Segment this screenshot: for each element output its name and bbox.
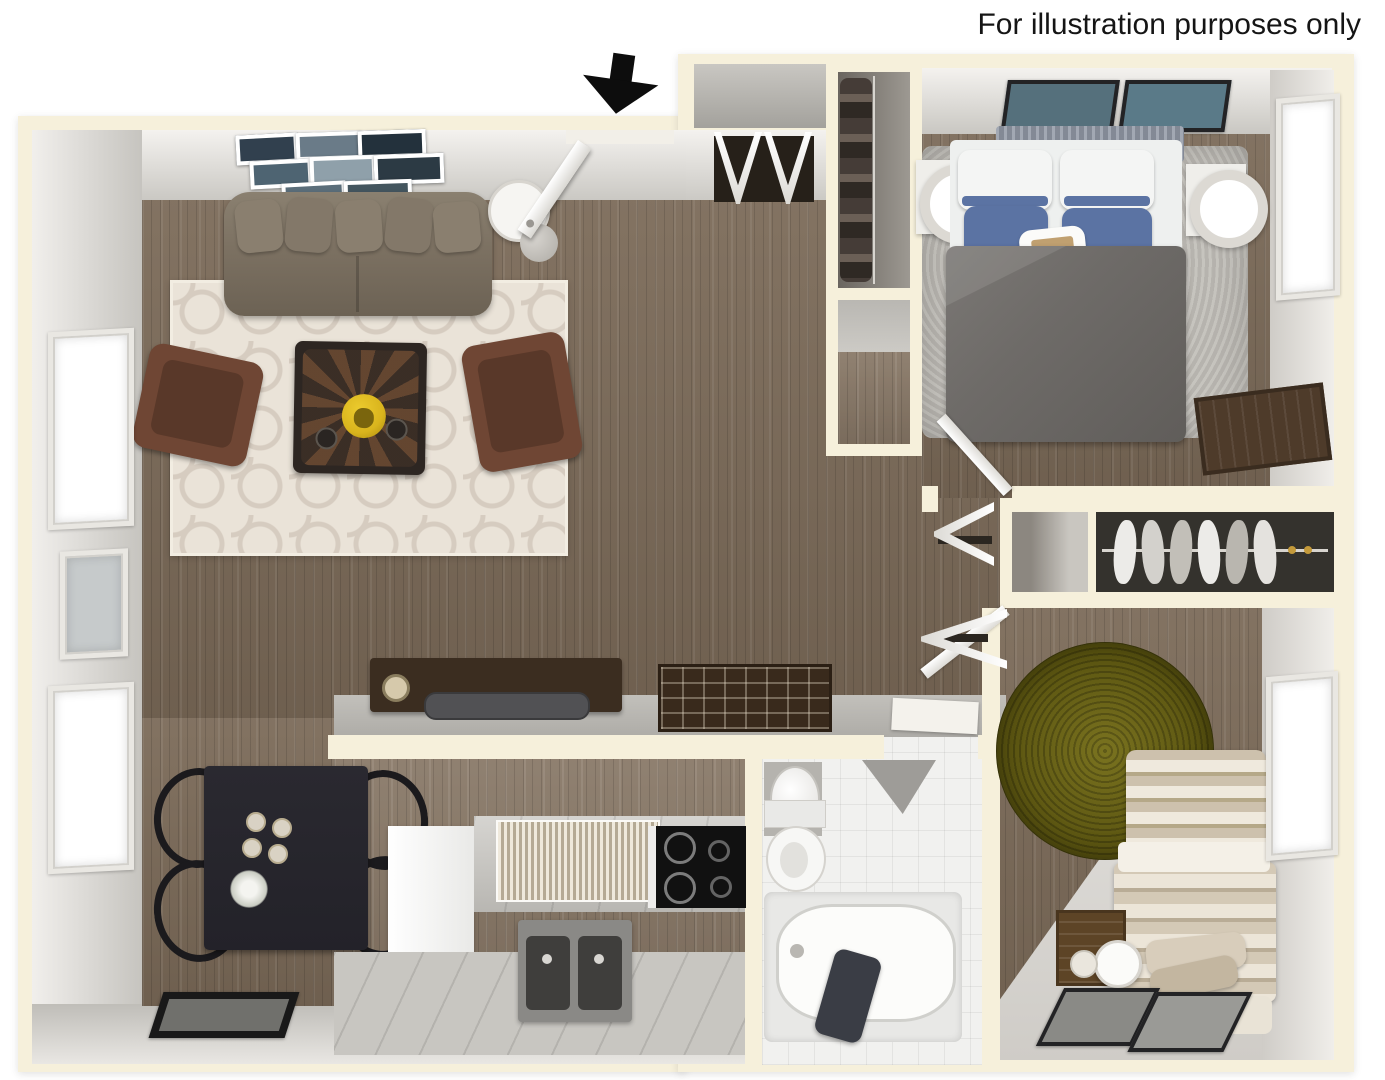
- window-glass: [1271, 676, 1333, 855]
- armchair-right: [460, 330, 585, 474]
- bedside-lamp-right: [1190, 170, 1268, 248]
- plate: [268, 844, 288, 864]
- tv-screen: [424, 692, 590, 720]
- wardrobe-left-compartment: [1012, 512, 1088, 592]
- gold-hanger-hook: [1304, 546, 1312, 554]
- plate: [242, 838, 262, 858]
- plate: [246, 812, 266, 832]
- entry-arrow-icon: [578, 49, 662, 121]
- kitchen-sink: [518, 920, 632, 1022]
- dining-table: [204, 766, 368, 950]
- toilet-bowl: [780, 842, 808, 878]
- burner: [708, 840, 730, 862]
- window-left-2: [48, 682, 134, 875]
- counter-papers: [891, 698, 979, 734]
- gallery-wall: [222, 128, 450, 198]
- hanging-coats: [840, 78, 872, 282]
- window-glass: [53, 333, 129, 525]
- sink-faucet: [594, 954, 604, 964]
- half-wall: [328, 735, 884, 759]
- bed-pillow-white: [1060, 150, 1154, 210]
- window-bedroom1: [1276, 93, 1340, 301]
- wine-crate: [658, 664, 832, 732]
- hanging-shirt: [1168, 519, 1193, 584]
- wardrobe-right-compartment: [1096, 512, 1334, 592]
- window-glass: [53, 687, 129, 869]
- lower-closet-floor: [838, 352, 910, 444]
- sofa-pillow: [432, 200, 482, 254]
- disclaimer-text: For illustration purposes only: [977, 8, 1361, 42]
- floor-mat-art: [149, 992, 300, 1038]
- tub-drain: [790, 944, 804, 958]
- sofa-pillow: [284, 196, 335, 254]
- sofa-pillow: [383, 196, 434, 255]
- sofa-pillow: [233, 198, 284, 255]
- door-knob: [525, 218, 536, 229]
- range-edge: [648, 826, 656, 908]
- sofa: [224, 192, 492, 316]
- floor-plan-canvas: For illustration purposes only: [0, 0, 1385, 1080]
- burner: [664, 832, 696, 864]
- tv-console: [370, 658, 622, 712]
- pillow-stripe: [962, 196, 1048, 206]
- armchair-seat: [476, 348, 565, 453]
- toilet-tank: [764, 800, 826, 828]
- hanging-shirt: [1140, 519, 1166, 584]
- window-bedroom2: [1266, 671, 1338, 861]
- floor-lamp-shade: [1094, 940, 1142, 988]
- bath-bedroom2-wall: [982, 608, 1000, 1065]
- arrow-head: [578, 75, 658, 119]
- burner: [710, 876, 732, 898]
- flower-centerpiece: [230, 870, 268, 908]
- sink-faucet: [542, 954, 552, 964]
- hanging-shirt: [1112, 519, 1138, 584]
- hanging-shirt: [1224, 519, 1250, 584]
- plate: [272, 818, 292, 838]
- sofa-pillow: [334, 198, 384, 253]
- pillow-stripe: [1064, 196, 1150, 206]
- bedroom2-white-band: [1118, 842, 1270, 872]
- entry-alcove: [694, 64, 828, 128]
- sink-basin: [526, 936, 570, 1010]
- gold-hanger-hook: [1288, 546, 1296, 554]
- console-knob: [382, 674, 410, 702]
- window-glass: [1281, 99, 1335, 296]
- burner: [664, 872, 696, 904]
- toilet-seat: [766, 826, 826, 892]
- kitchen-bath-wall: [745, 757, 762, 1065]
- window-glass: [65, 553, 123, 654]
- bedroom1-wall-art: [1118, 80, 1231, 132]
- window-left-small: [60, 548, 128, 660]
- armchair-seat: [149, 358, 245, 449]
- sink-basin: [578, 936, 622, 1010]
- coffee-table: [293, 341, 427, 475]
- sofa-seat-divider: [356, 256, 359, 312]
- dresser-mirror: [1194, 382, 1333, 475]
- closet-rod: [873, 76, 875, 284]
- dish-rack: [496, 820, 660, 902]
- window-left-1: [48, 328, 134, 531]
- hanging-shirt: [1252, 519, 1278, 584]
- bedroom1-south-wall-stub: [922, 486, 938, 512]
- duvet-fold: [946, 246, 1066, 306]
- cooktop: [656, 826, 746, 908]
- bed-pillow-white: [958, 150, 1052, 210]
- hanging-shirt: [1196, 519, 1221, 584]
- floor-mat-art-inner: [159, 999, 289, 1031]
- decor-bottle: [1070, 950, 1098, 978]
- decor-bowl-contents: [354, 408, 374, 428]
- duvet: [946, 246, 1186, 442]
